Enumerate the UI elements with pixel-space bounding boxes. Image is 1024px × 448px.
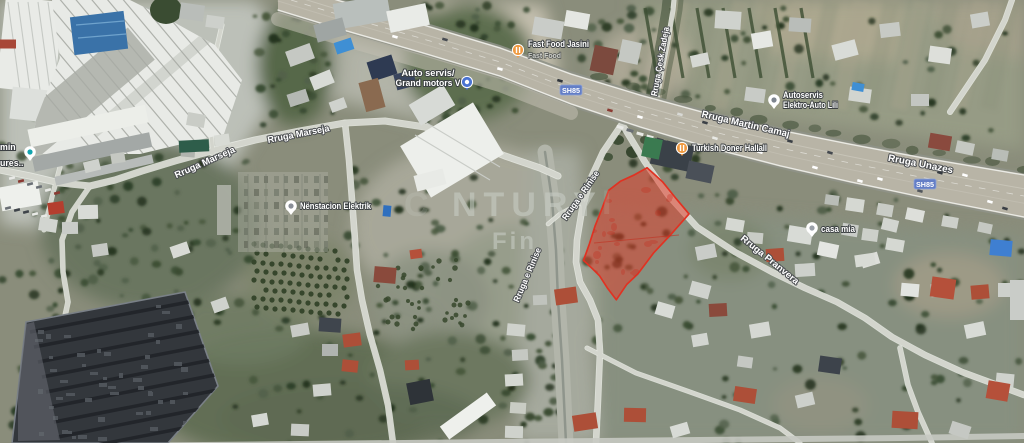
svg-text:SH85: SH85 — [562, 86, 580, 95]
svg-text:SH85: SH85 — [916, 180, 934, 189]
svg-text:Fast Food: Fast Food — [528, 51, 561, 60]
svg-text:Turkish Doner Hallall: Turkish Doner Hallall — [692, 143, 767, 153]
svg-text:Autoservis: Autoservis — [783, 90, 823, 100]
svg-text:Fin: Fin — [492, 228, 537, 255]
svg-text:Grand motors V: Grand motors V — [396, 78, 461, 88]
svg-text:Nënstacion Elektrik: Nënstacion Elektrik — [300, 201, 372, 211]
svg-text:min: min — [0, 142, 16, 152]
svg-text:Elektro-Auto Lili: Elektro-Auto Lili — [783, 100, 838, 110]
svg-text:Auto servis/: Auto servis/ — [402, 68, 455, 78]
svg-text:Fast Food Jasini: Fast Food Jasini — [528, 39, 589, 49]
svg-text:ures..: ures.. — [0, 158, 23, 168]
svg-text:I: I — [602, 184, 611, 222]
svg-text:casa mia: casa mia — [821, 224, 856, 234]
svg-text:C: C — [404, 186, 436, 224]
